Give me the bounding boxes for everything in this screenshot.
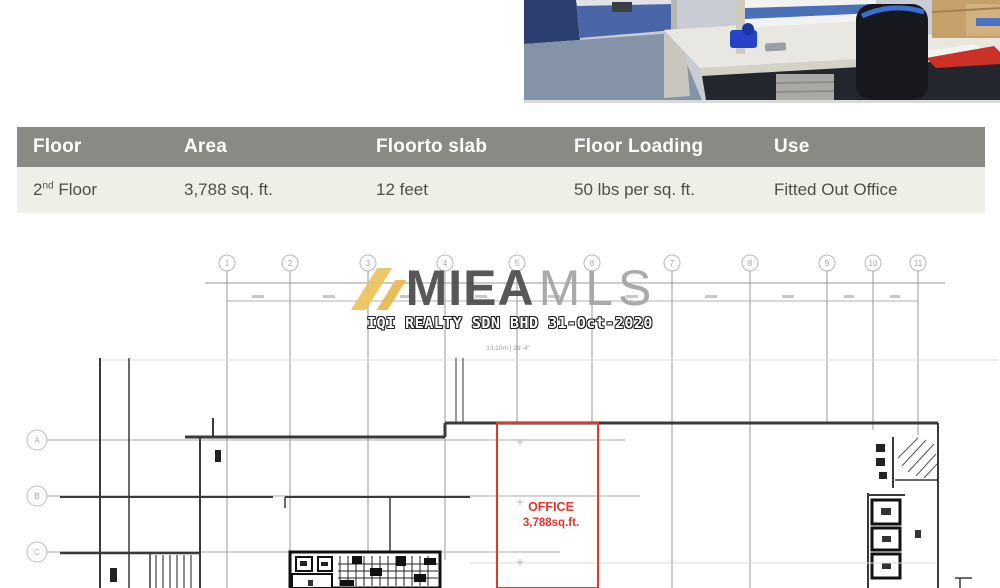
row-grid-labels: A B C [34,436,40,557]
svg-text:4: 4 [443,259,448,268]
header-area: Area [168,136,360,158]
furniture-block [290,552,440,588]
right-stairs [898,438,937,478]
header-floor-to-slab: Floorto slab [360,136,558,158]
top-dimension-lines [205,279,945,301]
cell-floor-loading: 50 lbs per sq. ft. [558,180,758,200]
drawer-unit [776,74,834,100]
walls [60,358,972,588]
office-photo-scene [524,0,1000,100]
svg-text:3: 3 [366,259,371,268]
header-floor: Floor [17,136,168,158]
svg-text:9: 9 [825,259,830,268]
svg-text:1: 1 [225,259,230,268]
box-label [976,18,1000,26]
svg-text:8: 8 [748,259,753,268]
svg-text:10: 10 [869,259,878,268]
svg-text:2: 2 [288,259,293,268]
floor-spec-table: Floor Area Floorto slab Floor Loading Us… [17,127,985,213]
svg-text:B: B [34,492,39,501]
floor-plan-drawing: 12 34 56 78 910 11 [0,230,1000,588]
dimension-number-smudges [252,295,900,298]
cell-floor-to-slab: 12 feet [360,180,558,200]
header-floor-loading: Floor Loading [558,136,758,158]
office-chair [856,4,928,100]
office-area-label: 3,788sq.ft. [523,517,579,529]
calculator [765,42,786,51]
office-label: OFFICE [528,500,574,514]
svg-text:5: 5 [515,259,520,268]
svg-text:6: 6 [590,259,595,268]
spec-table-header-row: Floor Area Floorto slab Floor Loading Us… [17,127,985,167]
svg-text:A: A [34,436,40,445]
column-grid-labels: 12 34 56 78 910 11 [225,259,923,268]
column-grid-lines [227,271,918,588]
cell-area: 3,788 sq. ft. [168,180,360,200]
listing-page: Floor Area Floorto slab Floor Loading Us… [0,0,1000,588]
cell-use: Fitted Out Office [758,180,985,200]
office-interior-photo [524,0,1000,103]
spec-table-data-row: 2nd Floor 3,788 sq. ft. 12 feet 50 lbs p… [17,167,985,213]
floor-ordinal: nd [42,180,53,191]
svg-text:7: 7 [670,259,675,268]
svg-text:C: C [34,548,40,557]
overall-dimension-note: 13.10m | 29'-4" [486,345,530,352]
left-stairs [156,555,191,588]
cell-floor: 2nd Floor [17,180,168,200]
chair-silhouette [612,2,632,12]
header-use: Use [758,136,985,158]
svg-text:11: 11 [914,259,923,268]
column-grid-bubbles [219,255,926,271]
dark-partition [524,0,580,44]
floor-plan: 12 34 56 78 910 11 [0,230,1000,588]
